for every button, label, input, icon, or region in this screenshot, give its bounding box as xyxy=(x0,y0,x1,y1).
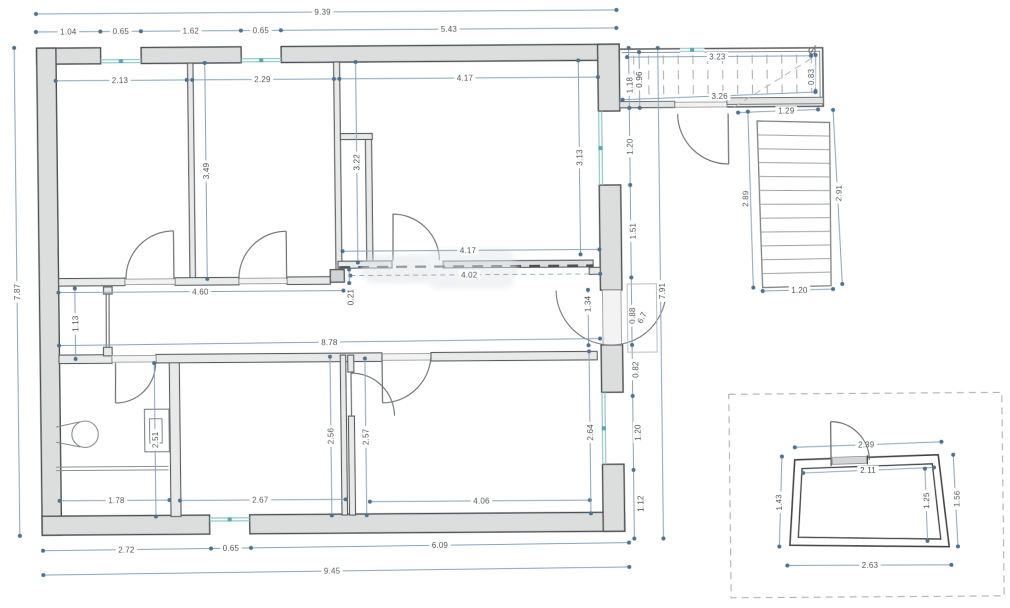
svg-text:1.43: 1.43 xyxy=(774,494,784,511)
svg-text:1.20: 1.20 xyxy=(633,424,642,441)
svg-text:0.65: 0.65 xyxy=(253,26,270,35)
svg-text:0.65: 0.65 xyxy=(223,544,240,553)
svg-text:1.04: 1.04 xyxy=(60,28,77,37)
svg-text:0.82: 0.82 xyxy=(631,361,640,378)
svg-text:0.83: 0.83 xyxy=(807,68,816,85)
svg-text:2.91: 2.91 xyxy=(834,184,843,201)
svg-text:1.62: 1.62 xyxy=(183,27,200,36)
svg-text:7.87: 7.87 xyxy=(13,283,22,300)
svg-text:4.17: 4.17 xyxy=(460,246,477,255)
svg-text:3.23: 3.23 xyxy=(709,52,726,61)
svg-text:1.18: 1.18 xyxy=(626,77,635,94)
svg-text:6.09: 6.09 xyxy=(432,541,449,550)
svg-text:2.56: 2.56 xyxy=(327,428,336,445)
svg-text:1.12: 1.12 xyxy=(636,495,645,512)
svg-text:1.20: 1.20 xyxy=(791,286,808,295)
svg-text:9.45: 9.45 xyxy=(324,567,341,576)
svg-text:1.56: 1.56 xyxy=(952,490,961,507)
svg-text:3.22: 3.22 xyxy=(353,154,362,171)
svg-text:2.67: 2.67 xyxy=(252,496,269,505)
svg-text:9.39: 9.39 xyxy=(314,8,331,17)
svg-text:1.25: 1.25 xyxy=(922,492,931,509)
svg-text:8.78: 8.78 xyxy=(321,338,338,347)
svg-text:0.96: 0.96 xyxy=(635,71,644,88)
svg-text:2.57: 2.57 xyxy=(362,428,371,445)
svg-text:4.60: 4.60 xyxy=(192,287,209,296)
svg-text:5.43: 5.43 xyxy=(441,25,458,34)
svg-text:2.11: 2.11 xyxy=(860,466,876,475)
svg-text:1.78: 1.78 xyxy=(108,496,125,505)
svg-text:4.17: 4.17 xyxy=(457,74,474,83)
svg-text:3.13: 3.13 xyxy=(575,149,584,166)
svg-text:2.64: 2.64 xyxy=(586,424,595,441)
svg-text:2.13: 2.13 xyxy=(112,76,129,85)
svg-text:0.21: 0.21 xyxy=(346,289,355,306)
svg-text:2.29: 2.29 xyxy=(254,75,271,84)
svg-text:0.65: 0.65 xyxy=(113,27,130,36)
svg-text:1.29: 1.29 xyxy=(778,107,795,116)
svg-text:1.13: 1.13 xyxy=(71,315,80,332)
svg-text:2.89: 2.89 xyxy=(741,190,750,207)
svg-text:3.49: 3.49 xyxy=(202,162,211,179)
svg-text:1.20: 1.20 xyxy=(626,138,635,155)
svg-text:3.26: 3.26 xyxy=(711,92,728,101)
svg-text:4.06: 4.06 xyxy=(473,497,490,506)
svg-text:7.91: 7.91 xyxy=(658,282,667,299)
svg-text:4.02: 4.02 xyxy=(461,271,478,280)
svg-text:2.51: 2.51 xyxy=(151,431,160,448)
svg-text:1.51: 1.51 xyxy=(629,223,638,240)
svg-text:1.34: 1.34 xyxy=(583,295,592,312)
svg-text:2.63: 2.63 xyxy=(862,561,879,570)
svg-text:2.72: 2.72 xyxy=(118,545,135,554)
